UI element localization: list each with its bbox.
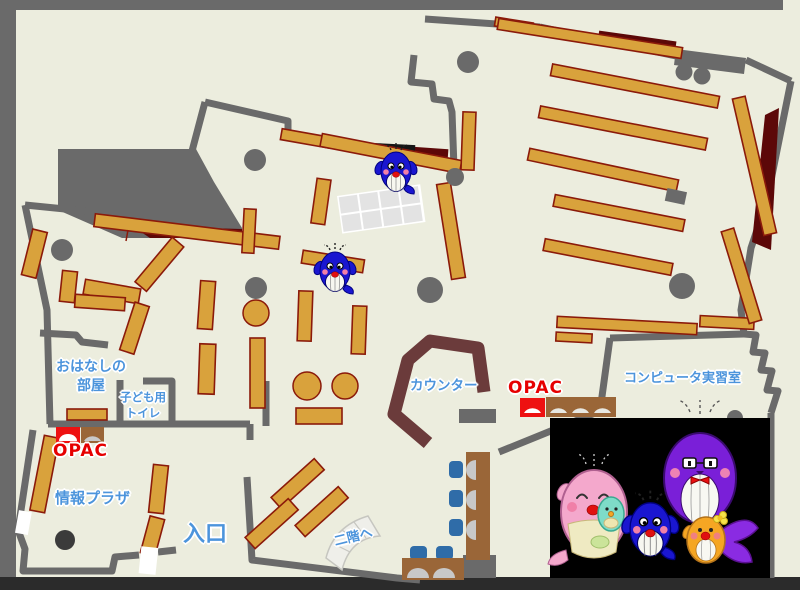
label-entrance: 入口 (183, 520, 227, 550)
label-opac-right: OPAC (508, 377, 563, 400)
kids-toilet-line1: 子ども用 (120, 390, 166, 404)
wall-stub (459, 409, 496, 423)
spout-icon (678, 400, 722, 414)
label-opac-left: OPAC (53, 440, 108, 463)
blue-whale-mascot-icon (312, 243, 358, 294)
label-computer-room: コンピュータ実習室 (624, 370, 741, 388)
purple-father-whale-icon (664, 433, 736, 524)
label-info-plaza: 情報プラザ (55, 488, 130, 508)
shelf-end-cap (665, 188, 687, 205)
library-floor-map: おはなしの 部屋 子ども用 トイレ OPAC 情報プラザ 入口 二階へ カウンタ… (0, 0, 800, 590)
label-kids-toilet: 子ども用 トイレ (114, 390, 172, 421)
kids-toilet-line2: トイレ (126, 406, 161, 420)
storytelling-room-line1: おはなしの (56, 359, 126, 375)
teal-baby-whale-icon (598, 497, 624, 531)
storytelling-room-line2: 部屋 (77, 378, 105, 394)
pillar (55, 530, 75, 550)
opac-terminal-right (520, 397, 616, 417)
label-counter: カウンター (410, 377, 478, 395)
doors (15, 510, 158, 575)
chairs (410, 461, 463, 560)
